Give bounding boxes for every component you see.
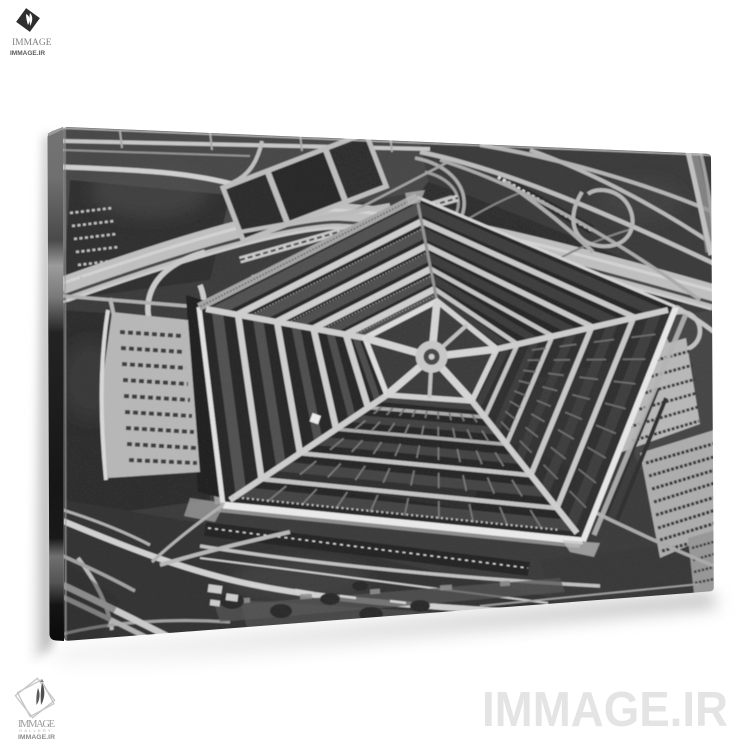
svg-text:IMMAGE.IR: IMMAGE.IR [482, 683, 728, 737]
svg-text:GALLERY: GALLERY [19, 728, 53, 733]
svg-text:IMMAGE.IR: IMMAGE.IR [10, 50, 45, 57]
svg-text:IMMAGE.IR: IMMAGE.IR [18, 734, 55, 741]
svg-text:IMMAGE: IMMAGE [12, 38, 52, 48]
